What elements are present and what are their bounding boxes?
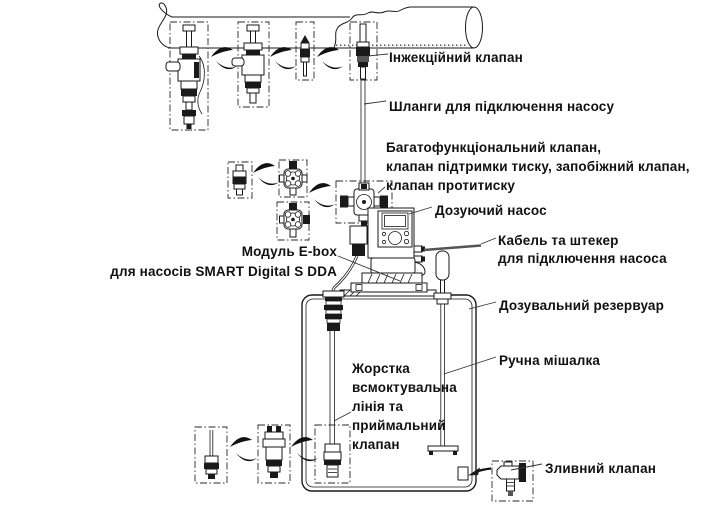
- pump-click-wheel: [389, 232, 402, 245]
- label-suction-line5: клапан: [352, 435, 457, 454]
- label-suction-line3: лінія та: [352, 397, 457, 416]
- label-cable-line2: для підключення насоса: [498, 250, 667, 268]
- dosing-pump: [368, 208, 425, 276]
- drain-valve: [497, 462, 526, 496]
- label-suction-line2: всмоктувальна: [352, 378, 457, 397]
- label-ebox-line1: Модуль E-box: [100, 242, 337, 262]
- pump-hose: [361, 79, 365, 184]
- label-cable-line1: Кабель та штекер: [498, 232, 667, 250]
- foot-valve-option-2: [263, 426, 285, 478]
- multifunction-valve-option-1: [280, 161, 308, 195]
- label-suction-line4: приймальний: [352, 416, 457, 435]
- valve-assembly-small: [232, 25, 264, 103]
- label-cable: Кабель та штекер для підключення насоса: [498, 232, 667, 268]
- label-mfv-line3: клапан протитиску: [386, 176, 690, 195]
- suction-connector: [323, 291, 344, 331]
- label-injection-valve: Інжекційний клапан: [389, 48, 523, 67]
- valve-assembly-large: [166, 25, 204, 129]
- injector-fitting: [300, 35, 310, 76]
- label-suction-line: Жорстка всмоктувальна лінія та приймальн…: [352, 359, 457, 454]
- label-hoses: Шланги для підключення насосу: [389, 97, 614, 116]
- label-multifunction-valve: Багатофункціональний клапан, клапан підт…: [386, 138, 690, 195]
- label-ebox-line2: для насосів SMART Digital S DDA: [100, 262, 337, 282]
- label-drain-valve: Зливний клапан: [545, 459, 656, 478]
- label-tank: Дозувальний резервуар: [499, 296, 664, 315]
- drain-arrow: [468, 468, 491, 476]
- label-mixer: Ручна мішалка: [499, 351, 600, 370]
- label-dosing-pump: Дозуючий насос: [435, 201, 547, 220]
- multifunction-valve-option-2: [280, 203, 311, 237]
- label-suction-line1: Жорстка: [352, 359, 457, 378]
- rigid-suction-line: [330, 331, 335, 445]
- label-ebox: Модуль E-box для насосів SMART Digital S…: [100, 242, 337, 282]
- pump-connector-1: [414, 246, 422, 252]
- label-mfv-line2: клапан підтримки тиску, запобіжний клапа…: [386, 157, 690, 176]
- diagram-page: Інжекційний клапан Шланги для підключенн…: [0, 0, 704, 528]
- inline-fitting: [233, 165, 247, 195]
- process-pipe: [157, 3, 482, 48]
- label-mfv-line1: Багатофункціональний клапан,: [386, 138, 690, 157]
- foot-valve-option-1: [204, 430, 219, 479]
- pump-cable: [424, 246, 481, 251]
- injection-valve: [356, 24, 370, 79]
- dosing-head: [350, 226, 367, 256]
- e-box-module: [351, 273, 427, 292]
- tank-drain-outlet: [458, 467, 468, 480]
- foot-valve-installed: [324, 444, 341, 477]
